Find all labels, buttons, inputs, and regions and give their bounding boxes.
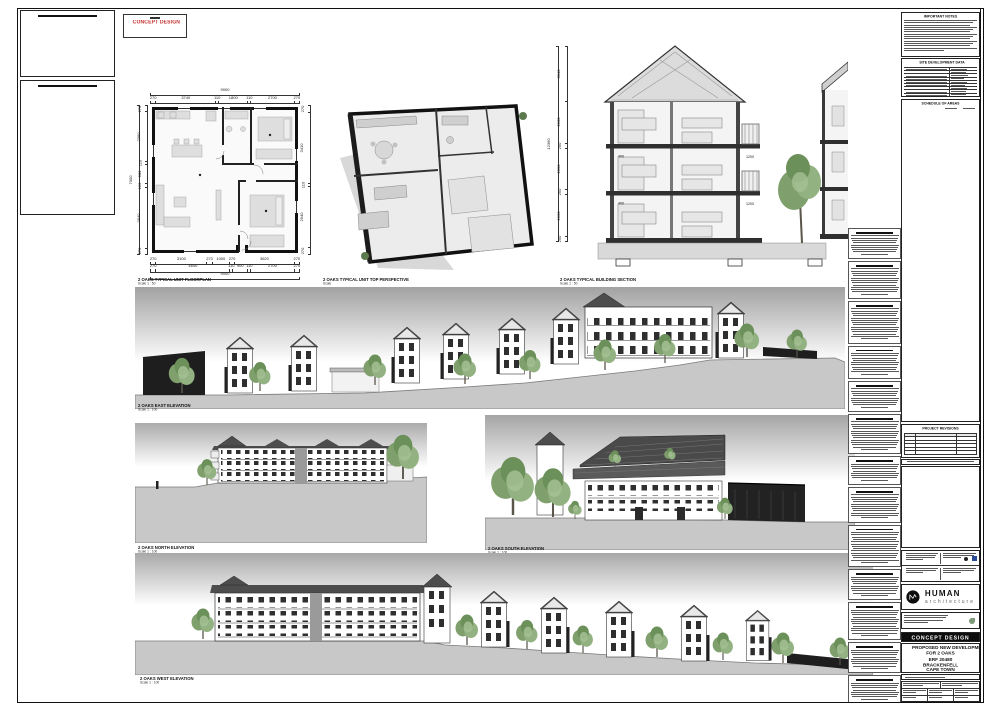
stamp-text: CONCEPT DESIGN: [133, 20, 178, 25]
certification-logo-icon: [972, 556, 977, 561]
north-elevation-drawing: [135, 423, 427, 543]
drawing-info-table: [901, 681, 980, 702]
schedule-of-areas-box: SCHEDULE OF AREAS: [901, 99, 980, 422]
revisions-box: PROJECT REVISIONS: [901, 424, 980, 458]
floorplan-dim-left-total: 7000: [132, 105, 140, 255]
schedule-of-areas-header: SCHEDULE OF AREAS: [919, 102, 961, 105]
section-drawing: 400 400 1200 1200: [570, 40, 848, 282]
section-dim-slab-2: 400: [618, 202, 624, 206]
consultant-logo-icon: [964, 557, 968, 561]
west-elevation-drawing: [135, 553, 873, 675]
section-dim-segments: 3540269025026902502690250: [560, 46, 568, 242]
project-title-box: PROPOSED NEW DEVELOPMENT FOR 2 OAKS ERF …: [901, 643, 980, 673]
floorplan-caption: 2 OAKS TYPICAL UNIT FLOORPLAN Scale 1 : …: [138, 278, 211, 286]
stamp-label-line: [150, 17, 160, 19]
floorplan-dim-top-total: 9000: [150, 88, 300, 96]
consultants-box: [901, 550, 980, 582]
important-notes-box: IMPORTANT NOTES: [901, 12, 980, 57]
banner-text: CONCEPT DESIGN: [910, 634, 972, 641]
section-dim-balcony-2: 1200: [746, 202, 754, 206]
concept-design-stamp: CONCEPT DESIGN: [123, 14, 187, 38]
west-elevation-caption: 2 OAKS WEST ELEVATION Scale 1 : 100: [140, 677, 194, 685]
schedule-column-headers: [904, 107, 977, 110]
section-caption: 2 OAKS TYPICAL BUILDING SECTION Scale 1 …: [560, 278, 636, 286]
east-elevation-caption: 2 OAKS EAST ELEVATION Scale 1 : 100: [138, 404, 191, 412]
section-dim-balcony-1: 1200: [746, 155, 754, 159]
logo-subtitle: architecture: [925, 599, 975, 605]
architect-logo-text: HUMAN architecture: [925, 589, 975, 605]
project-line: CAPE TOWN: [912, 668, 969, 673]
drawing-sheet: CONCEPT DESIGN 9000 27037401101800110270…: [0, 0, 1000, 705]
eco-logo-icon: [969, 618, 975, 624]
floorplan-drawing: [150, 105, 300, 255]
concept-design-banner: CONCEPT DESIGN: [901, 632, 980, 642]
important-notes-body: [904, 20, 977, 51]
perspective-caption: 2 OAKS TYPICAL UNIT TOP PERSPECTIVE Scal…: [323, 278, 409, 286]
margin-note-header: [38, 85, 96, 87]
logo-name: HUMAN: [925, 589, 975, 598]
architect-logo-box: HUMAN architecture: [901, 584, 980, 610]
titleblock-divider-line: [980, 8, 981, 703]
margin-note-box-1: [20, 10, 115, 77]
eco-consultant-box: [901, 612, 980, 629]
general-notes-column: [848, 228, 901, 702]
site-data-box: SITE DEVELOPMENT DATA: [901, 58, 980, 97]
section-dim-slab-1: 400: [618, 155, 624, 159]
consultant-row-2: [902, 566, 979, 581]
consultant-row-1: [902, 551, 979, 566]
revisions-table: [904, 433, 977, 455]
caution-note: [901, 459, 980, 465]
south-elevation-drawing: [485, 415, 855, 550]
stamp-space-box: [901, 466, 980, 548]
site-data-table: [904, 67, 977, 97]
floorplan-dim-top: 270374011018001102700270: [150, 96, 300, 104]
revisions-header: PROJECT REVISIONS: [919, 427, 961, 430]
project-line: PROPOSED NEW DEVELOPMENT: [912, 646, 969, 651]
east-elevation-drawing: [135, 287, 845, 409]
floorplan-dim-right: 27034101102940270: [303, 105, 311, 255]
drawing-title-strip: [901, 674, 980, 680]
floorplan-dim-left: 27023901109001202940270: [140, 105, 148, 255]
margin-note-box-2: [20, 80, 115, 215]
important-notes-header: IMPORTANT NOTES: [919, 15, 961, 18]
human-architecture-logo-icon: [906, 587, 920, 607]
project-title-lines: PROPOSED NEW DEVELOPMENT FOR 2 OAKS ERF …: [912, 646, 969, 673]
margin-note-header: [38, 15, 96, 17]
perspective-drawing: [318, 96, 543, 274]
site-data-header: SITE DEVELOPMENT DATA: [919, 61, 961, 64]
